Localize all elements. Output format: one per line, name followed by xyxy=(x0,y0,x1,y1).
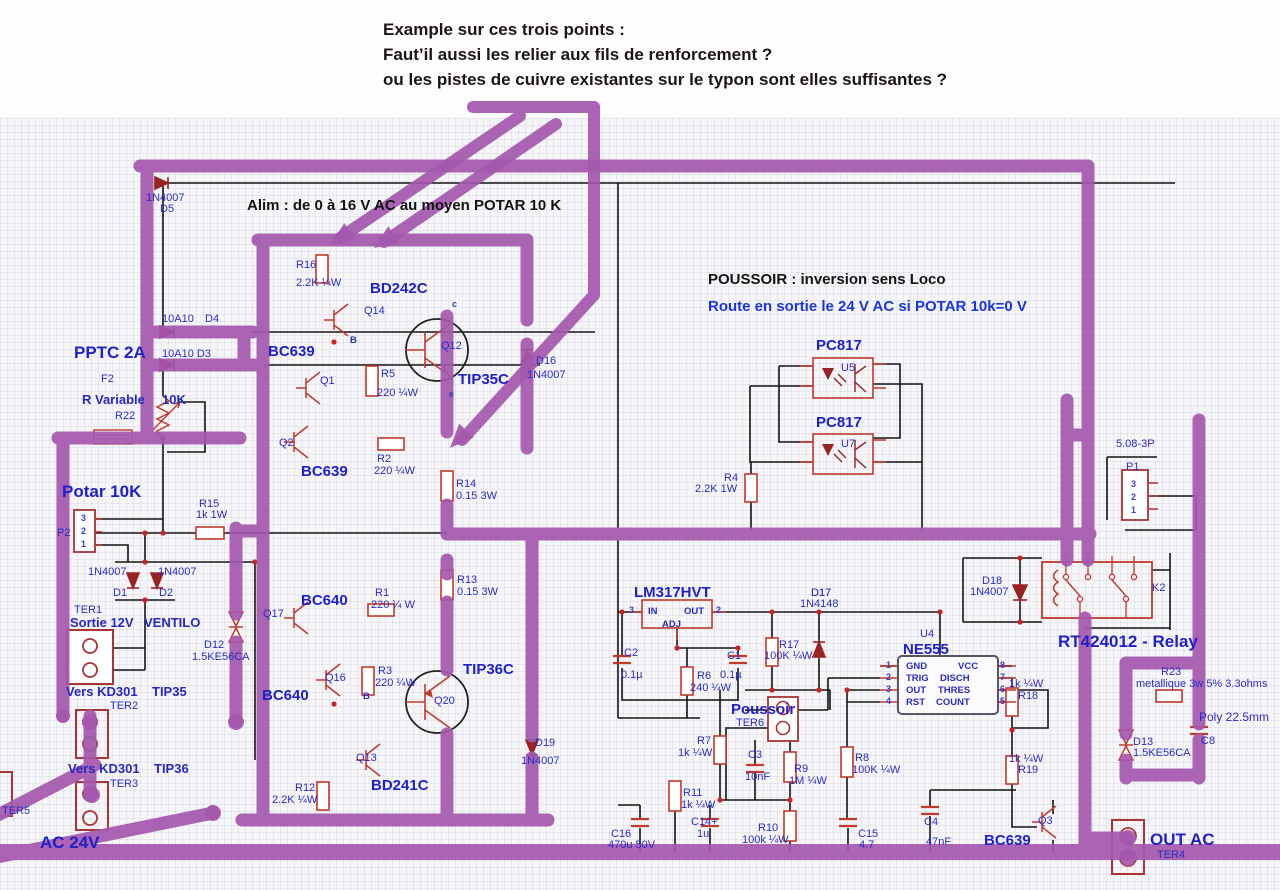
label-8: 8 xyxy=(1000,661,1005,670)
label-47nf: 47nF xyxy=(926,837,951,848)
label-bc639: BC639 xyxy=(984,833,1031,848)
label-r-variable: R Variable xyxy=(82,393,145,406)
schematic-page: Example sur ces trois points : Faut’il a… xyxy=(0,0,1280,890)
label-220-w: 220 ¼W xyxy=(374,466,415,477)
label-0-1: 0.1µ xyxy=(720,670,742,681)
label-1u: 1u xyxy=(697,829,709,840)
label-q17: Q17 xyxy=(263,609,284,620)
label-disch: DISCH xyxy=(940,674,970,684)
label-2: 2 xyxy=(716,606,721,615)
label-out: OUT xyxy=(684,607,704,617)
label-k2: K2 xyxy=(1152,583,1165,594)
label-1n4148: 1N4148 xyxy=(800,599,839,610)
label-470u-50v: 470u 50V xyxy=(608,840,655,851)
label-4: 4 xyxy=(886,697,891,706)
label-c2: C2 xyxy=(624,648,638,659)
label-0-1: 0.1µ xyxy=(621,670,643,681)
label-ter4: TER4 xyxy=(1157,850,1185,861)
label-100k-w: 100K ¼W xyxy=(852,765,900,776)
label-ter2: TER2 xyxy=(110,701,138,712)
label-220-w: 220 ¼W xyxy=(377,388,418,399)
label-100k-w: 100K ¼W xyxy=(764,651,812,662)
label-1n4007: 1N4007 xyxy=(521,756,560,767)
label-100k-w: 100k ¼W xyxy=(742,835,788,846)
label-3: 3 xyxy=(81,514,86,523)
label-f2: F2 xyxy=(101,374,114,385)
label-ter6: TER6 xyxy=(736,718,764,729)
label-route-en-sortie-le-24-v-ac-si-potar-10k-0-v: Route en sortie le 24 V AC si POTAR 10k=… xyxy=(708,299,1027,314)
label-ter5: TER5 xyxy=(2,806,30,817)
label-c14: C14+ xyxy=(691,817,718,828)
label-p1: P1 xyxy=(1126,462,1139,473)
label-2: 2 xyxy=(81,527,86,536)
label-r11: R11 xyxy=(683,788,702,799)
label-1m-w: 1M ¼W xyxy=(789,776,827,787)
label-adj: ADJ xyxy=(662,620,681,630)
label-1k-w: 1k ¼W xyxy=(678,748,712,759)
label-pptc-2a: PPTC 2A xyxy=(74,344,146,361)
label-poussoir-inversion-sens-loco: POUSSOIR : inversion sens Loco xyxy=(708,272,946,287)
label-1n4007: 1N4007 xyxy=(88,567,127,578)
label-d5: D5 xyxy=(160,204,174,215)
label-1k-1w: 1k 1W xyxy=(196,510,227,521)
label-e: e xyxy=(449,390,454,399)
label-r5: R5 xyxy=(381,369,395,380)
label-4-7: 4.7 xyxy=(859,840,874,851)
label-1-5ke56ca: 1.5KE56CA xyxy=(1133,748,1190,759)
label-pc817: PC817 xyxy=(816,338,862,353)
label-r16: R16 xyxy=(296,260,316,271)
label-alim-de-0-16-v-ac-au-moyen-potar-10-k: Alim : de 0 à 16 V AC au moyen POTAR 10 … xyxy=(247,198,561,213)
label-1-5ke56ca: 1.5KE56CA xyxy=(192,652,249,663)
label-240-w: 240 ¼W xyxy=(690,683,731,694)
label-q20: Q20 xyxy=(434,696,455,707)
label-2-2k-w: 2.2K ¼W xyxy=(296,278,341,289)
label-3: 3 xyxy=(1131,480,1136,489)
label-q2: Q2 xyxy=(279,438,294,449)
label-u4: U4 xyxy=(920,629,934,640)
label-poussoir: Poussoir xyxy=(731,702,795,717)
label-0-15-3w: 0.15 3W xyxy=(457,587,498,598)
label-ventilo: VENTILO xyxy=(144,616,200,629)
label-5-08-3p: 5.08-3P xyxy=(1116,439,1155,450)
label-q3: Q3 xyxy=(1038,816,1053,827)
label-0-15-3w: 0.15 3W xyxy=(456,491,497,502)
label-1n4007: 1N4007 xyxy=(970,587,1009,598)
label-bc639: BC639 xyxy=(268,344,315,359)
label-r6: R6 xyxy=(697,671,711,682)
label-5: 5 xyxy=(1000,697,1005,706)
label-u7: U7 xyxy=(841,439,855,450)
label-3: 3 xyxy=(629,606,634,615)
label-3: 3 xyxy=(886,685,891,694)
label-potar-10k: Potar 10K xyxy=(62,483,141,500)
label-p2: P2 xyxy=(57,528,70,539)
label-ac-24v: AC 24V xyxy=(40,834,100,851)
label-c4: C4 xyxy=(924,817,938,828)
label-c: c xyxy=(452,300,457,309)
label-1k-w: 1k ¼W xyxy=(681,800,715,811)
label-1: 1 xyxy=(81,540,86,549)
label-vers-kd301: Vers KD301 xyxy=(66,685,138,698)
label-thres: THRES xyxy=(938,686,970,696)
label-1k-w: 1k ¼W xyxy=(1009,679,1043,690)
label-in: IN xyxy=(648,607,658,617)
label-1: 1 xyxy=(886,661,891,670)
label-7: 7 xyxy=(1000,673,1005,682)
label-metallique-3w-5-3-3ohms: metallique 3w 5% 3.3ohms xyxy=(1136,679,1267,690)
label-q12: Q12 xyxy=(441,341,462,352)
label-out-ac: OUT AC xyxy=(1150,831,1215,848)
label-q13: Q13 xyxy=(356,753,377,764)
label-out: OUT xyxy=(906,686,926,696)
label-vcc: VCC xyxy=(958,662,978,672)
label-tip35: TIP35 xyxy=(152,685,187,698)
label-2-2k-1w: 2.2K 1W xyxy=(695,484,737,495)
label-r1: R1 xyxy=(375,588,389,599)
label-d16: D16 xyxy=(536,356,556,367)
label-layer: Alim : de 0 à 16 V AC au moyen POTAR 10 … xyxy=(0,0,1280,890)
label-b: B xyxy=(363,692,370,702)
label-r3: R3 xyxy=(378,666,392,677)
label-10a10-d3: 10A10 D3 xyxy=(162,349,211,360)
label-c8: C8 xyxy=(1201,736,1215,747)
label-q1: Q1 xyxy=(320,376,335,387)
label-pc817: PC817 xyxy=(816,415,862,430)
label-220-w: 220 ¼W xyxy=(375,678,416,689)
label-r9: R9 xyxy=(794,764,808,775)
label-10nf: 10nF xyxy=(745,772,770,783)
label-q14: Q14 xyxy=(364,306,385,317)
label-count: COUNT xyxy=(936,698,970,708)
label-gnd: GND xyxy=(906,662,927,672)
label-r7: R7 xyxy=(697,736,711,747)
label-bc639: BC639 xyxy=(301,464,348,479)
label-sortie-12v: Sortie 12V xyxy=(70,616,134,629)
label-r18: R18 xyxy=(1018,691,1038,702)
label-d4: D4 xyxy=(205,314,219,325)
label-1n4007: 1N4007 xyxy=(158,567,197,578)
label-d1: D1 xyxy=(113,588,127,599)
label-bd242c: BD242C xyxy=(370,281,428,296)
label-r23: R23 xyxy=(1161,667,1181,678)
label-bc640: BC640 xyxy=(262,688,309,703)
label-bd241c: BD241C xyxy=(371,778,429,793)
label-r13: R13 xyxy=(457,575,477,586)
label-ter3: TER3 xyxy=(110,779,138,790)
label-r2: R2 xyxy=(377,454,391,465)
label-d17: D17 xyxy=(811,588,831,599)
label-c3: C3 xyxy=(748,750,762,761)
label-d12: D12 xyxy=(204,640,224,651)
label-lm317hvt: LM317HVT xyxy=(634,585,711,600)
label-r19: R19 xyxy=(1018,765,1038,776)
label-r14: R14 xyxy=(456,479,476,490)
label-10a10: 10A10 xyxy=(162,314,194,325)
label-u5: U5 xyxy=(841,363,855,374)
label-tip36c: TIP36C xyxy=(463,662,514,677)
label-r12: R12 xyxy=(295,783,315,794)
label-tip36: TIP36 xyxy=(154,762,189,775)
label-d19: D19 xyxy=(535,738,555,749)
label-bc640: BC640 xyxy=(301,593,348,608)
label-2-2k-w: 2.2K ¼W xyxy=(272,795,317,806)
label-ne555: NE555 xyxy=(903,642,949,657)
label-220-w: 220 ¼ W xyxy=(371,600,415,611)
label-q16: Q16 xyxy=(325,673,346,684)
label-r8: R8 xyxy=(855,753,869,764)
label-r22: R22 xyxy=(115,411,135,422)
label-r10: R10 xyxy=(758,823,778,834)
label-tip35c: TIP35C xyxy=(458,372,509,387)
label-rt424012-relay: RT424012 - Relay xyxy=(1058,633,1198,650)
label-c1: C1 xyxy=(727,651,741,662)
label-d2: D2 xyxy=(159,588,173,599)
label-6: 6 xyxy=(1000,685,1005,694)
label-2: 2 xyxy=(1131,493,1136,502)
label-10k: 10K xyxy=(162,393,186,406)
label-poly-22-5mm: Poly 22.5mm xyxy=(1199,711,1269,723)
label-1: 1 xyxy=(1131,506,1136,515)
label-trig: TRIG xyxy=(906,674,929,684)
label-2: 2 xyxy=(886,673,891,682)
label-b: B xyxy=(350,336,357,346)
label-vers-kd301: Vers KD301 xyxy=(68,762,140,775)
label-rst: RST xyxy=(906,698,925,708)
label-1n4007: 1N4007 xyxy=(527,370,566,381)
